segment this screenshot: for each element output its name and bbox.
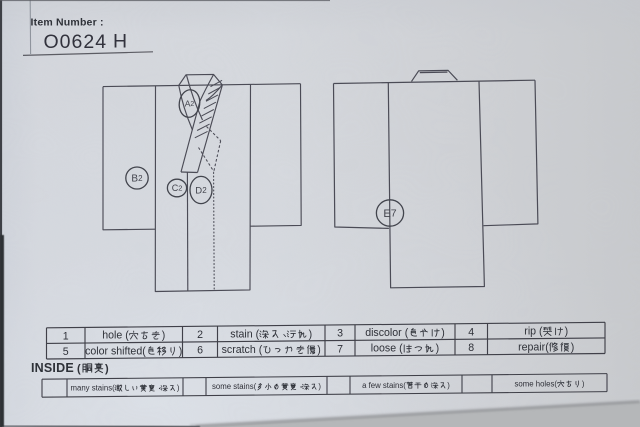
svg-text:hole: hole bbox=[102, 330, 122, 342]
svg-text:Item Number :: Item Number : bbox=[31, 16, 104, 28]
svg-text:): ) bbox=[317, 344, 321, 356]
svg-text:O0624: O0624 bbox=[44, 31, 108, 53]
svg-text:a few stains: a few stains bbox=[362, 381, 403, 390]
svg-text:6: 6 bbox=[197, 345, 203, 357]
svg-text:(: ( bbox=[112, 384, 115, 393]
svg-text:7: 7 bbox=[337, 343, 343, 355]
svg-text:color shifted: color shifted bbox=[85, 345, 142, 357]
svg-text:some holes: some holes bbox=[515, 379, 555, 388]
svg-text:H: H bbox=[113, 31, 127, 53]
svg-text:1: 1 bbox=[63, 330, 69, 342]
svg-text:scratch: scratch bbox=[222, 344, 256, 356]
svg-text:(: ( bbox=[254, 382, 257, 391]
svg-text:2: 2 bbox=[190, 101, 194, 108]
svg-text:2: 2 bbox=[202, 186, 207, 195]
svg-text:E: E bbox=[383, 208, 390, 220]
svg-text:(: ( bbox=[142, 345, 146, 357]
svg-text:discolor: discolor bbox=[365, 327, 402, 339]
svg-text:(: ( bbox=[539, 326, 543, 338]
svg-text:3: 3 bbox=[337, 328, 343, 340]
svg-text:4: 4 bbox=[468, 326, 474, 338]
svg-text:): ) bbox=[318, 382, 321, 391]
svg-text:some stains: some stains bbox=[212, 382, 254, 391]
svg-text:8: 8 bbox=[468, 342, 474, 354]
svg-text:): ) bbox=[565, 326, 569, 338]
svg-text:rip: rip bbox=[524, 326, 536, 338]
svg-text:(: ( bbox=[545, 341, 549, 353]
svg-text:2: 2 bbox=[138, 174, 143, 183]
svg-text:(: ( bbox=[403, 381, 406, 390]
svg-text:(: ( bbox=[256, 328, 260, 340]
svg-text:(: ( bbox=[405, 327, 409, 339]
svg-text:many stains: many stains bbox=[71, 384, 113, 393]
svg-text:2: 2 bbox=[178, 184, 182, 193]
svg-text:INSIDE: INSIDE bbox=[31, 361, 74, 375]
svg-text:): ) bbox=[105, 363, 109, 375]
svg-text:): ) bbox=[162, 330, 166, 342]
svg-text:): ) bbox=[309, 328, 313, 340]
svg-text:): ) bbox=[177, 384, 180, 393]
svg-text:): ) bbox=[179, 345, 183, 357]
svg-text:repair: repair bbox=[518, 341, 546, 353]
svg-text:(: ( bbox=[399, 343, 403, 355]
svg-text:): ) bbox=[436, 343, 440, 355]
svg-text:(: ( bbox=[259, 344, 263, 356]
svg-text:(: ( bbox=[77, 363, 81, 375]
svg-text:): ) bbox=[582, 379, 585, 388]
svg-text:5: 5 bbox=[63, 346, 69, 358]
svg-text:7: 7 bbox=[391, 207, 397, 219]
svg-text:(: ( bbox=[125, 330, 129, 342]
svg-text:): ) bbox=[447, 381, 450, 390]
svg-text:2: 2 bbox=[197, 329, 203, 341]
svg-text:): ) bbox=[571, 341, 575, 353]
svg-text:loose: loose bbox=[371, 343, 396, 355]
svg-text:): ) bbox=[441, 327, 445, 339]
svg-text:stain: stain bbox=[230, 328, 252, 340]
svg-text:(: ( bbox=[554, 379, 557, 388]
